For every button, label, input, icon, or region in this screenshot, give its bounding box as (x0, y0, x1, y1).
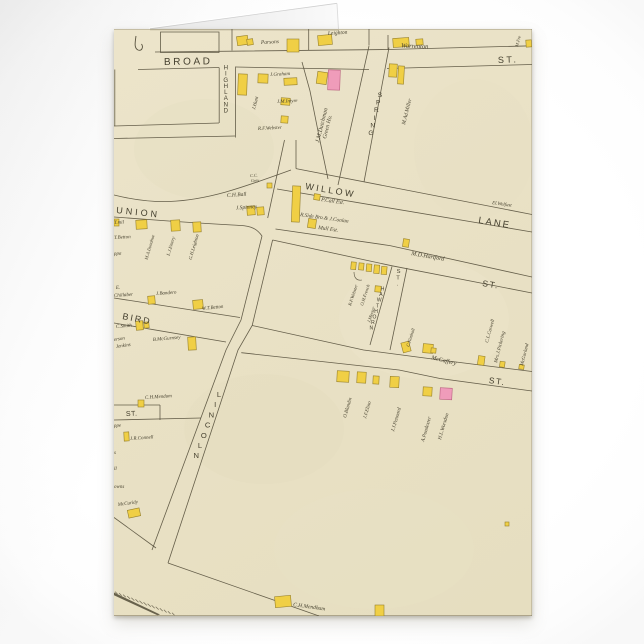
svg-text:J.J.Pennard: J.J.Pennard (390, 407, 403, 433)
svg-text:WILLOW: WILLOW (305, 181, 357, 199)
svg-text:SPRING: SPRING (368, 92, 382, 137)
svg-text:BROAD: BROAD (164, 56, 213, 68)
svg-text:erson: erson (114, 336, 126, 343)
svg-text:Parsons: Parsons (260, 39, 279, 46)
svg-text:O.Blandin: O.Blandin (343, 397, 354, 419)
svg-text:J.M.Intyre: J.M.Intyre (277, 99, 299, 105)
svg-text:E.: E. (115, 286, 121, 291)
svg-text:J.F.Elino: J.F.Elino (363, 400, 373, 419)
svg-text:R.Side Bro.& J.Conlan: R.Side Bro.& J.Conlan (299, 212, 349, 225)
svg-text:Warrenton: Warrenton (401, 43, 429, 51)
svg-text:C.H.Ball: C.H.Ball (227, 192, 247, 199)
svg-text:s: s (114, 451, 116, 456)
svg-text:McCuridy: McCuridy (117, 500, 140, 508)
svg-text:C.Smith: C.Smith (116, 324, 133, 330)
svg-text:A.Pondexter: A.Pondexter (420, 415, 433, 443)
svg-text:ppe: ppe (114, 424, 122, 429)
svg-text:W.T.Betton: W.T.Betton (202, 305, 225, 312)
svg-text:Chillaber: Chillaber (114, 293, 133, 299)
svg-text:McGarland: McGarland (520, 343, 531, 368)
svg-text:C.H.Mendum: C.H.Mendum (145, 394, 173, 401)
svg-text:T.mil: T.mil (114, 220, 125, 226)
svg-text:T.Betton: T.Betton (114, 235, 131, 241)
svg-text:LANE: LANE (478, 215, 512, 231)
svg-text:C.H.Mendham: C.H.Mendham (293, 602, 326, 612)
svg-text:HIGHLAND: HIGHLAND (223, 65, 228, 115)
svg-text:Jenkins: Jenkins (116, 343, 132, 350)
svg-text:ST.: ST. (126, 411, 138, 418)
svg-text:H.L.Worsdon: H.L.Worsdon (437, 412, 451, 441)
svg-text:ll: ll (114, 467, 117, 472)
svg-text:ppa: ppa (114, 252, 122, 257)
svg-text:M.A.Donahue: M.A.Donahue (143, 234, 155, 261)
svg-text:B.McGurnsey: B.McGurnsey (153, 336, 182, 343)
svg-text:ST.: ST. (498, 54, 519, 65)
svg-text:P.Call Est.: P.Call Est. (320, 197, 345, 206)
svg-text:L.J.Emery: L.J.Emery (166, 235, 177, 257)
svg-text:owns: owns (114, 485, 124, 490)
svg-text:J.R.Connell: J.R.Connell (130, 435, 155, 442)
svg-text:Grey: Grey (251, 178, 260, 183)
svg-text:J.Graham: J.Graham (270, 72, 291, 78)
svg-text:J.Hunt: J.Hunt (252, 96, 260, 111)
svg-text:M.Ad.Miller: M.Ad.Miller (401, 97, 414, 126)
svg-text:Leighton: Leighton (327, 30, 348, 37)
svg-text:J.Bandero: J.Bandero (156, 291, 177, 297)
svg-text:Mull Est.: Mull Est. (317, 225, 339, 234)
svg-text:R.F.Webster: R.F.Webster (257, 126, 282, 132)
svg-text:G.H.Leighton: G.H.Leighton (189, 233, 201, 260)
